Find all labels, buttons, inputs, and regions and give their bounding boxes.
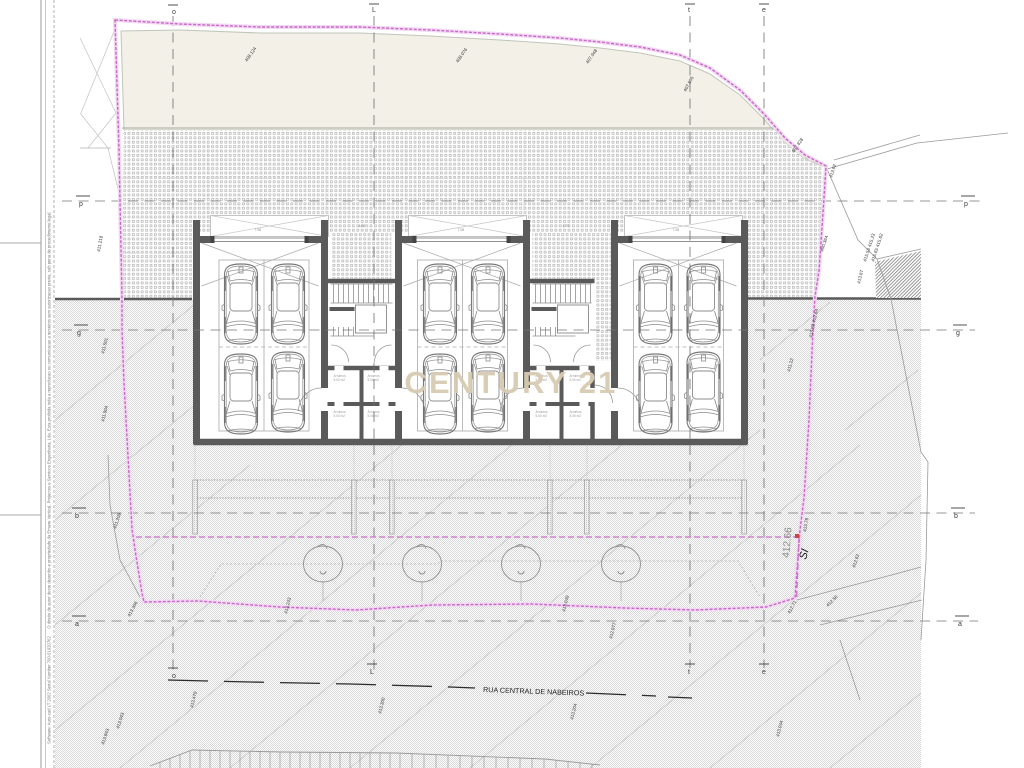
- svg-text:5.00 m2: 5.00 m2: [570, 414, 582, 418]
- svg-text:t: t: [688, 669, 690, 676]
- svg-text:L: L: [372, 7, 376, 14]
- svg-text:t: t: [688, 7, 690, 14]
- svg-text:7.08: 7.08: [458, 228, 465, 232]
- svg-text:CENTURY 21: CENTURY 21: [404, 365, 617, 400]
- svg-text:O direito de autor deste desen: O direito de autor deste desenho e propr…: [47, 211, 52, 628]
- svg-text:L: L: [370, 669, 374, 676]
- svg-text:a: a: [75, 621, 79, 628]
- svg-text:5.00 m2: 5.00 m2: [368, 414, 380, 418]
- svg-text:b: b: [75, 513, 79, 520]
- svg-text:o: o: [172, 9, 176, 16]
- svg-text:4.06: 4.06: [359, 224, 366, 228]
- svg-text:a: a: [958, 621, 962, 628]
- svg-text:5.00 m2: 5.00 m2: [334, 414, 346, 418]
- svg-text:e: e: [762, 7, 766, 14]
- svg-text:g: g: [77, 330, 81, 337]
- svg-text:5.00 m2: 5.00 m2: [368, 378, 380, 382]
- svg-text:o: o: [172, 673, 176, 680]
- svg-text:4.79: 4.79: [563, 224, 570, 228]
- svg-text:7.08: 7.08: [673, 228, 680, 232]
- svg-text:b: b: [954, 513, 958, 520]
- svg-text:5.00 m2: 5.00 m2: [536, 414, 548, 418]
- svg-text:g: g: [956, 330, 960, 337]
- svg-text:p: p: [964, 201, 968, 208]
- svg-text:7.08: 7.08: [255, 228, 262, 232]
- svg-text:Software: Auto-cad LT 2002 Ser: Software: Auto-cad LT 2002 Serial Number…: [47, 636, 52, 744]
- svg-text:p: p: [79, 201, 83, 208]
- svg-text:e: e: [762, 669, 766, 676]
- svg-text:5.00 m2: 5.00 m2: [334, 378, 346, 382]
